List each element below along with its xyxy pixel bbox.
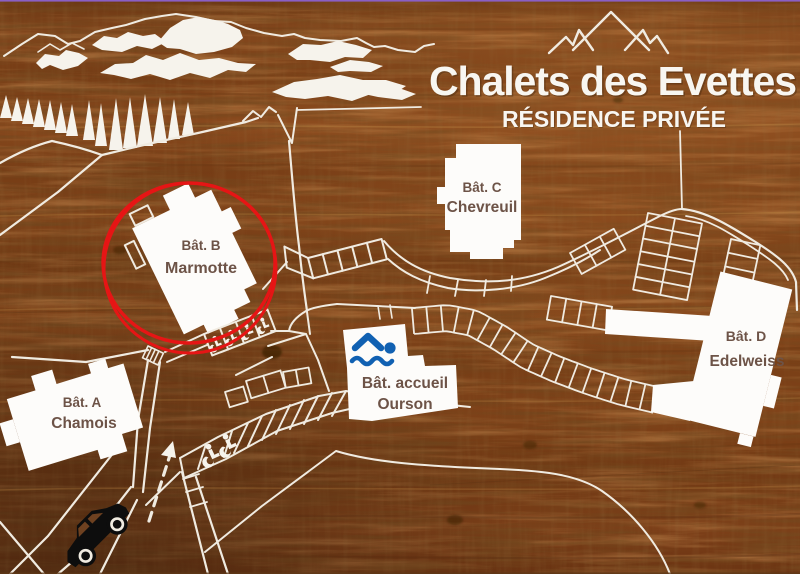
svg-text:Chalets des Evettes: Chalets des Evettes (429, 58, 797, 104)
svg-text:Ourson: Ourson (377, 396, 432, 413)
svg-text:Bât. B: Bât. B (181, 238, 220, 253)
svg-text:Chevreuil: Chevreuil (447, 199, 518, 216)
svg-text:Chamois: Chamois (51, 415, 116, 432)
svg-text:Bât. C: Bât. C (462, 180, 501, 195)
svg-text:Bât. accueil: Bât. accueil (362, 375, 448, 392)
svg-text:RÉSIDENCE PRIVÉE: RÉSIDENCE PRIVÉE (502, 105, 726, 132)
svg-text:Bât. D: Bât. D (726, 328, 766, 344)
svg-text:Edelweiss: Edelweiss (710, 353, 785, 370)
svg-text:Bât. A: Bât. A (63, 395, 102, 410)
svg-text:Marmotte: Marmotte (165, 260, 237, 277)
